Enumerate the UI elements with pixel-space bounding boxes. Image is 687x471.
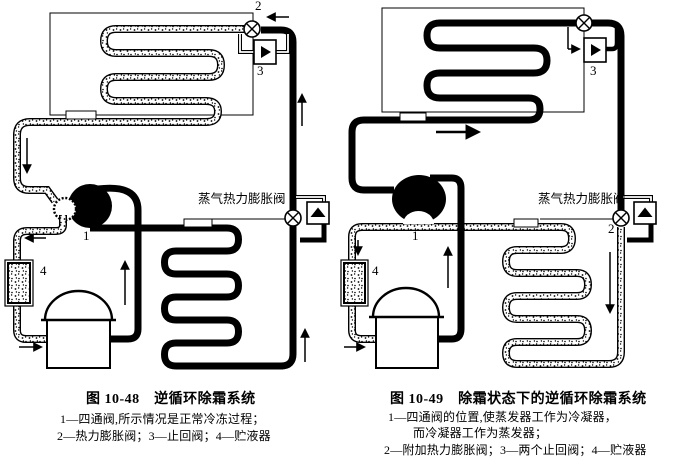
label-check-valve-3: 3 bbox=[257, 64, 264, 77]
figure-legend-line: 而冷凝器工作为蒸发器； bbox=[413, 424, 547, 441]
suction-line bbox=[352, 304, 376, 339]
pipe-tag bbox=[514, 219, 538, 227]
figure-legend-line: 1—四通阀,所示情况是正常冷冻过程； bbox=[60, 410, 265, 427]
label-vapor-txv: 蒸气热力膨胀阀 bbox=[198, 193, 286, 206]
figure-caption: 图 10-49 除霜状态下的逆循环除霜系统 bbox=[390, 388, 647, 408]
compressor bbox=[41, 291, 116, 368]
label-four-way-valve-1: 1 bbox=[83, 229, 90, 242]
compressor bbox=[369, 288, 444, 368]
fig-10-49-diagram bbox=[341, 8, 656, 368]
check-valve-bypass bbox=[240, 34, 288, 64]
label-receiver-4: 4 bbox=[40, 264, 47, 277]
fig-10-48-diagram bbox=[5, 13, 329, 368]
scanned-textbook-figure: 2 3 1 4 蒸气热力膨胀阀 3 1 4 2 蒸气热力膨胀阀 图 10-48 … bbox=[0, 0, 687, 471]
receiver bbox=[5, 260, 33, 306]
figure-legend-line: 1—四通阀的位置,使蒸发器工作为冷凝器， bbox=[388, 408, 617, 425]
label-check-valve-3: 3 bbox=[590, 64, 597, 77]
label-expansion-valve-2: 2 bbox=[255, 0, 262, 12]
label-receiver-4: 4 bbox=[372, 264, 379, 277]
figure-caption: 图 10-48 逆循环除霜系统 bbox=[86, 388, 256, 408]
label-vapor-txv: 蒸气热力膨胀阀 bbox=[538, 193, 626, 206]
condenser-coil bbox=[90, 228, 283, 366]
pipe-tag bbox=[400, 113, 426, 121]
expansion-valve-icon bbox=[244, 21, 260, 37]
label-additional-txv-2: 2 bbox=[608, 222, 615, 235]
evaporator-coil-hot bbox=[352, 23, 576, 190]
receiver bbox=[341, 260, 368, 306]
label-four-way-valve-1: 1 bbox=[412, 229, 419, 242]
figure-legend-line: 2—附加热力膨胀阀；3—两个止回阀；4—贮液器 bbox=[384, 441, 647, 458]
pipe-tag bbox=[184, 219, 212, 227]
frame-tab bbox=[66, 111, 96, 119]
figure-legend-line: 2—热力膨胀阀；3—止回阀；4—贮液器 bbox=[57, 427, 271, 444]
